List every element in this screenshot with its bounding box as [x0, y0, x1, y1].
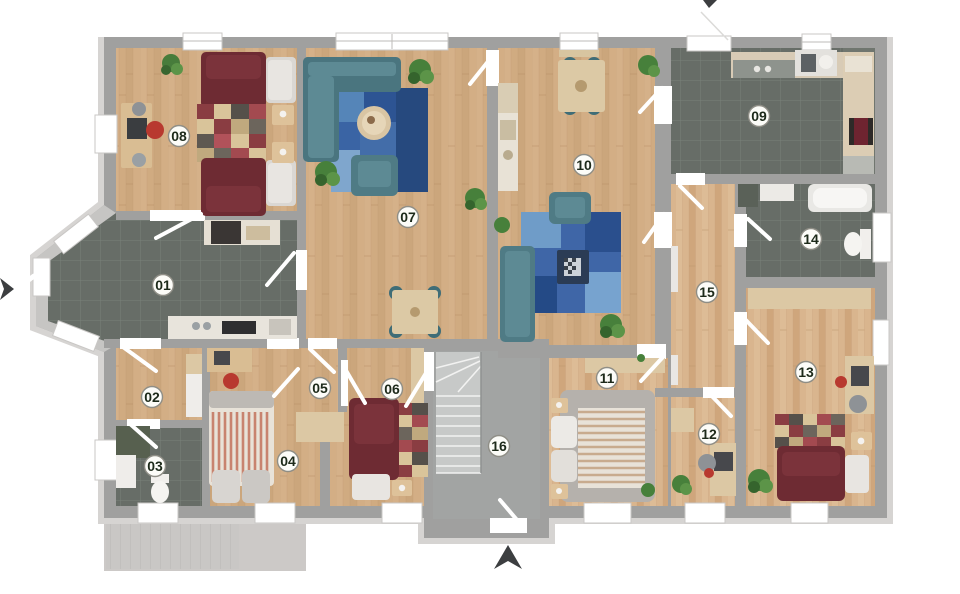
svg-text:10: 10 [576, 157, 592, 173]
svg-text:08: 08 [171, 128, 187, 144]
svg-text:01: 01 [155, 277, 171, 293]
svg-text:11: 11 [600, 370, 615, 386]
svg-text:15: 15 [699, 284, 715, 300]
svg-text:07: 07 [400, 209, 416, 225]
svg-text:09: 09 [751, 108, 767, 124]
svg-text:02: 02 [144, 389, 160, 405]
svg-text:12: 12 [701, 426, 717, 442]
svg-text:16: 16 [491, 438, 507, 454]
svg-text:06: 06 [384, 381, 400, 397]
svg-text:04: 04 [280, 453, 296, 469]
svg-text:13: 13 [798, 364, 814, 380]
svg-text:03: 03 [147, 458, 163, 474]
svg-text:14: 14 [803, 231, 819, 247]
svg-text:05: 05 [312, 380, 328, 396]
